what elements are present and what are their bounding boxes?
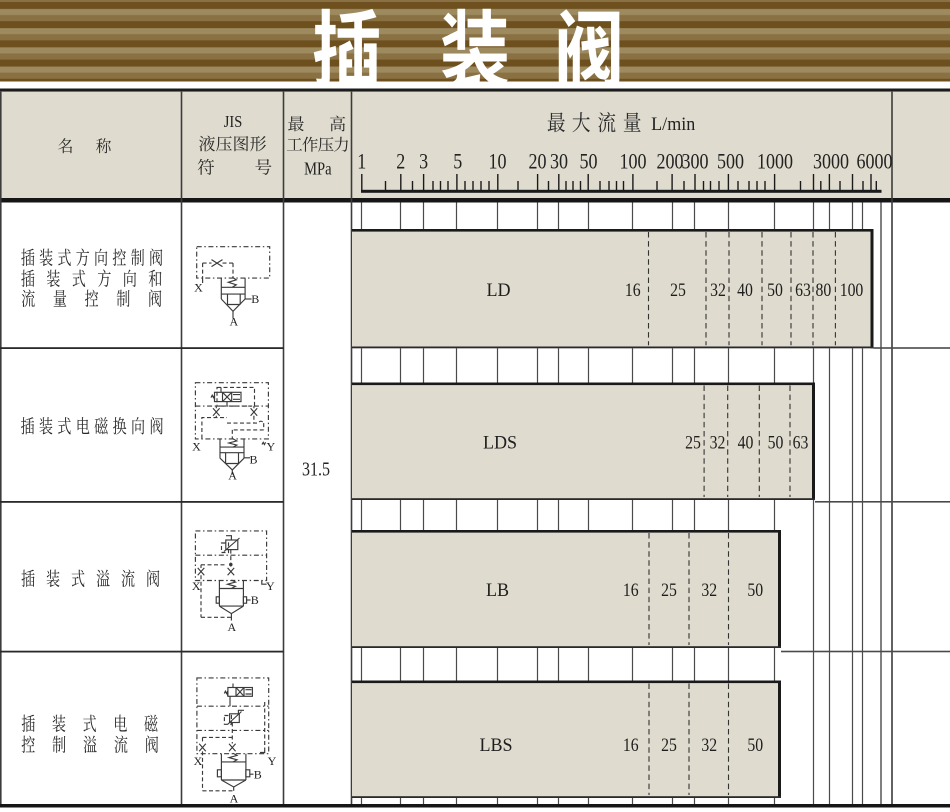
svg-text:3: 3 [419, 150, 428, 174]
svg-text:16: 16 [623, 734, 639, 756]
svg-text:32: 32 [701, 579, 717, 601]
svg-text:LBS: LBS [479, 735, 512, 757]
svg-text:B: B [254, 767, 262, 781]
svg-text:A: A [230, 792, 239, 806]
svg-text:50: 50 [747, 579, 763, 601]
svg-text:50: 50 [767, 279, 783, 301]
svg-text:B: B [251, 292, 259, 306]
svg-text:40: 40 [738, 431, 754, 453]
svg-text:31.5: 31.5 [302, 458, 330, 480]
svg-text:300: 300 [681, 150, 708, 174]
svg-text:3000: 3000 [813, 150, 849, 174]
svg-text:40: 40 [737, 279, 753, 301]
svg-text:A: A [227, 620, 236, 634]
svg-text:100: 100 [840, 279, 864, 301]
svg-text:B: B [251, 593, 259, 607]
svg-text:25: 25 [661, 579, 677, 601]
svg-text:L/min: L/min [651, 114, 695, 136]
svg-text:X: X [192, 440, 201, 454]
svg-text:200: 200 [656, 150, 683, 174]
svg-text:500: 500 [717, 150, 744, 174]
svg-text:32: 32 [710, 431, 726, 453]
svg-text:16: 16 [625, 279, 641, 301]
svg-text:X: X [194, 754, 203, 768]
svg-text:LDS: LDS [483, 432, 517, 454]
svg-text:Y: Y [266, 579, 275, 593]
svg-text:1: 1 [357, 150, 366, 174]
svg-text:50: 50 [747, 734, 763, 756]
svg-text:X: X [192, 579, 201, 593]
svg-text:JIS: JIS [224, 113, 242, 131]
svg-text:Y: Y [268, 754, 277, 768]
svg-text:16: 16 [623, 579, 639, 601]
svg-text:LD: LD [486, 280, 510, 302]
svg-text:A: A [229, 315, 238, 329]
svg-text:25: 25 [661, 734, 677, 756]
svg-text:X: X [194, 281, 203, 295]
svg-text:20: 20 [528, 150, 546, 174]
svg-text:A: A [228, 469, 237, 483]
svg-text:6000: 6000 [856, 150, 892, 174]
svg-text:25: 25 [685, 431, 701, 453]
svg-text:LB: LB [486, 580, 509, 602]
svg-text:63: 63 [793, 431, 809, 453]
svg-text:80: 80 [816, 279, 832, 301]
svg-text:2: 2 [396, 150, 405, 174]
svg-text:10: 10 [488, 150, 506, 174]
svg-text:30: 30 [550, 150, 568, 174]
svg-text:50: 50 [768, 431, 784, 453]
svg-text:MPa: MPa [304, 160, 331, 178]
svg-text:32: 32 [701, 734, 717, 756]
svg-text:25: 25 [670, 279, 686, 301]
svg-text:50: 50 [579, 150, 597, 174]
svg-text:100: 100 [619, 150, 646, 174]
svg-text:5: 5 [453, 150, 462, 174]
svg-text:1000: 1000 [757, 150, 793, 174]
svg-text:B: B [249, 452, 257, 466]
svg-text:Y: Y [266, 440, 275, 454]
svg-text:63: 63 [795, 279, 811, 301]
svg-text:32: 32 [710, 279, 726, 301]
